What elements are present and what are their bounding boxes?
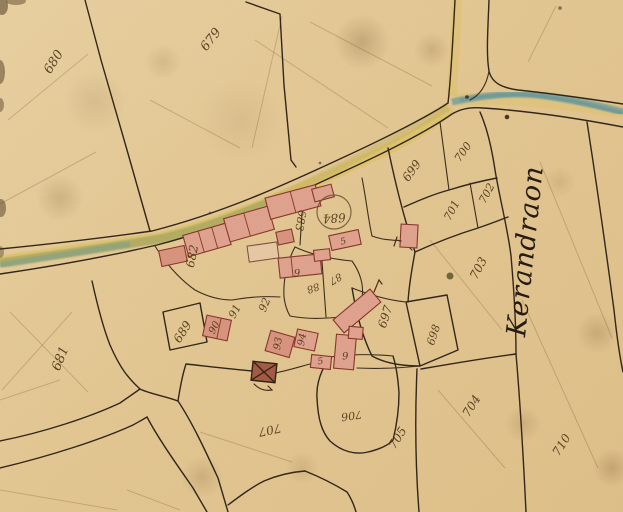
cadastral-map-canvas[interactable]: 680 679 681 682 683 684 689 90 91 92 93 … (0, 0, 623, 512)
cadastral-map-svg: 680 679 681 682 683 684 689 90 91 92 93 … (0, 0, 623, 512)
parchment-grain-texture (0, 0, 623, 512)
